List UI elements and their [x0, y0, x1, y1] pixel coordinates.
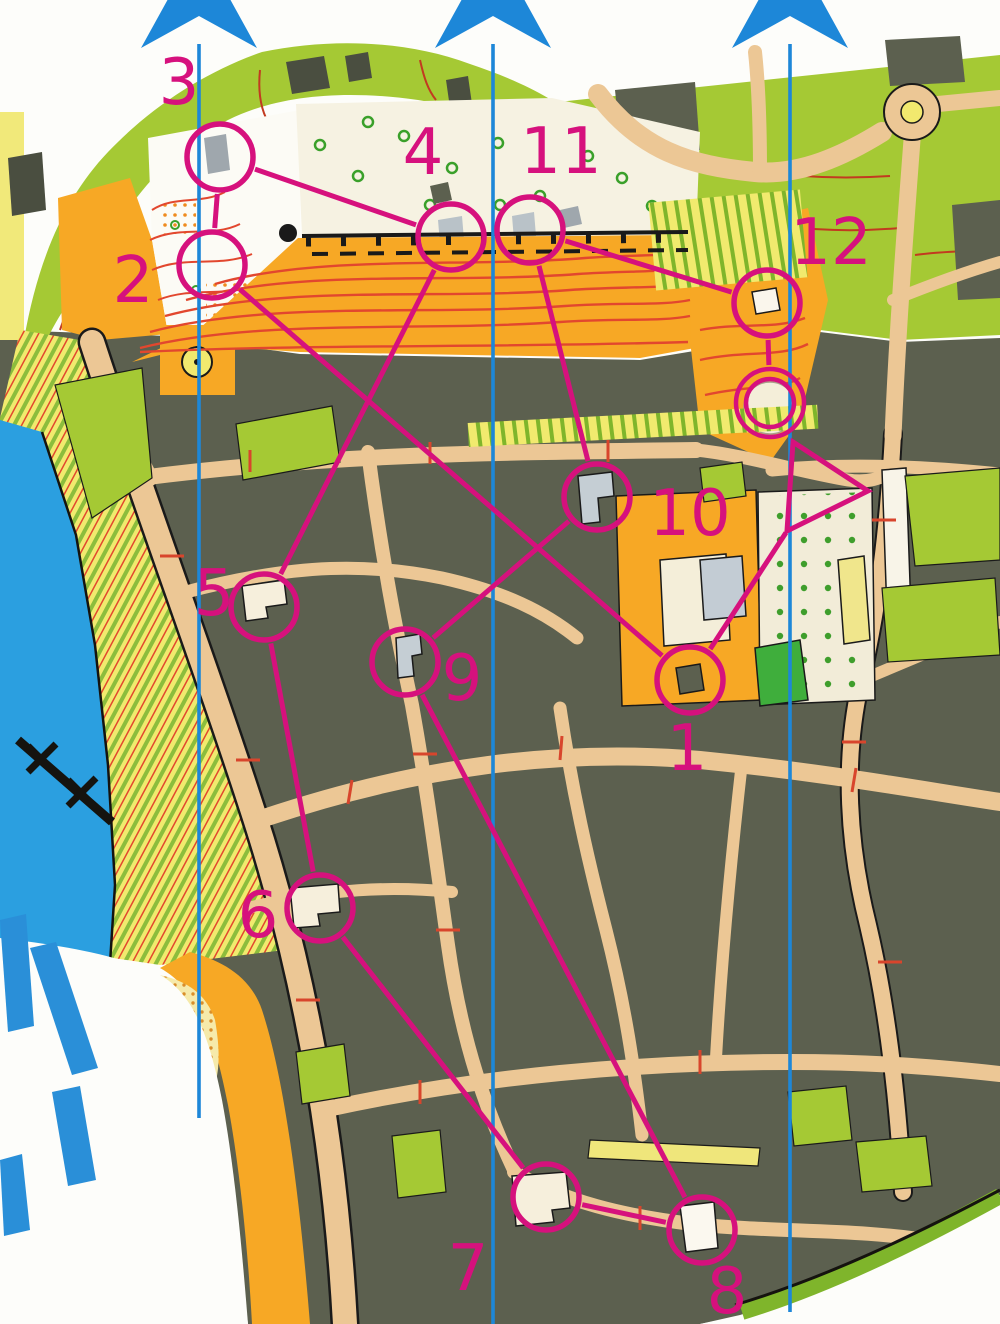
control-number-label: 9: [442, 642, 483, 716]
control-number-label: 1: [667, 712, 708, 786]
control-number-label: 3: [159, 46, 200, 120]
control-number-label: 11: [520, 115, 601, 189]
control-number-label: 5: [194, 557, 235, 631]
course-leg-line: [215, 194, 218, 228]
control-number-label: 4: [403, 116, 444, 190]
course-leg-line: [768, 340, 769, 365]
control-number-label: 12: [790, 206, 871, 280]
orienteering-map-page: 123456789101112: [0, 0, 1000, 1324]
orienteering-map: 123456789101112: [0, 0, 1000, 1324]
control-number-label: 10: [649, 477, 730, 551]
control-number-label: 2: [113, 244, 154, 318]
control-number-label: 8: [707, 1255, 748, 1324]
control-number-label: 6: [238, 879, 279, 953]
monument-dot-icon: [279, 224, 297, 242]
control-number-label: 7: [448, 1232, 489, 1306]
